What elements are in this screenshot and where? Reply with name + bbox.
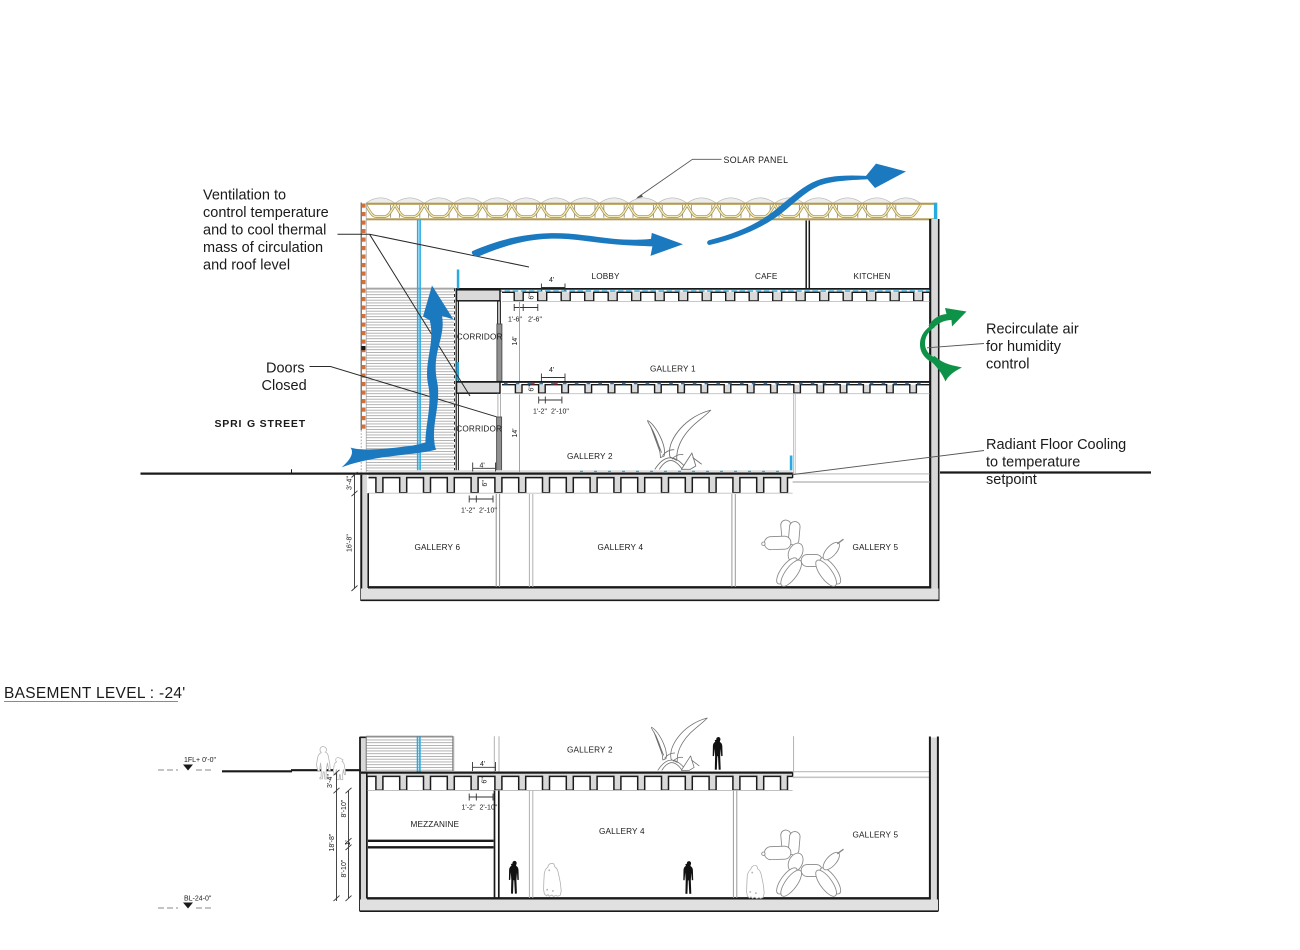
svg-text:and to cool thermal: and to cool thermal	[203, 223, 326, 239]
svg-text:14': 14'	[512, 336, 519, 345]
svg-text:MEZZANINE: MEZZANINE	[411, 820, 460, 829]
svg-text:4': 4'	[480, 761, 485, 768]
svg-text:GALLERY 4: GALLERY 4	[599, 827, 645, 836]
svg-text:GALLERY 6: GALLERY 6	[415, 543, 461, 552]
svg-text:CORRIDOR: CORRIDOR	[457, 333, 503, 342]
svg-text:1'-2": 1'-2"	[461, 508, 475, 515]
svg-text:Radiant Floor Cooling: Radiant Floor Cooling	[986, 437, 1126, 453]
svg-text:2'-10": 2'-10"	[479, 508, 497, 515]
svg-text:1'-6": 1'-6"	[508, 317, 522, 324]
svg-text:1FL+ 0'-0": 1FL+ 0'-0"	[184, 757, 217, 764]
svg-text:BL-24-0": BL-24-0"	[184, 896, 212, 903]
svg-text:and roof level: and roof level	[203, 258, 290, 274]
svg-text:6": 6"	[482, 480, 489, 487]
svg-text:8'-10": 8'-10"	[341, 859, 348, 877]
svg-text:4': 4'	[549, 367, 554, 374]
svg-text:6": 6"	[482, 777, 489, 784]
svg-text:GALLERY 1: GALLERY 1	[650, 365, 696, 374]
svg-text:8'-10": 8'-10"	[341, 799, 348, 817]
svg-text:14': 14'	[512, 428, 519, 437]
svg-text:4': 4'	[549, 277, 554, 284]
svg-text:for humidity: for humidity	[986, 339, 1062, 355]
svg-text:Recirculate air: Recirculate air	[986, 322, 1079, 338]
svg-text:CORRIDOR: CORRIDOR	[456, 425, 502, 434]
svg-text:to temperature: to temperature	[986, 455, 1080, 471]
svg-text:Ventilation to: Ventilation to	[203, 188, 286, 204]
svg-text:2'-10": 2'-10"	[551, 409, 569, 416]
svg-text:16'-8": 16'-8"	[347, 534, 354, 552]
svg-text:GALLERY 5: GALLERY 5	[853, 831, 899, 840]
svg-text:Closed: Closed	[262, 378, 307, 394]
svg-text:6": 6"	[529, 385, 536, 392]
svg-text:18'-8": 18'-8"	[329, 833, 336, 851]
svg-text:1'-2": 1'-2"	[462, 805, 476, 812]
svg-text:6": 6"	[529, 293, 536, 300]
svg-text:4': 4'	[480, 463, 485, 470]
svg-text:SPRI: SPRI	[215, 418, 243, 430]
svg-text:3'-4": 3'-4"	[327, 774, 334, 788]
svg-text:control: control	[986, 357, 1030, 373]
svg-text:GALLERY 5: GALLERY 5	[853, 543, 899, 552]
svg-text:2'-6": 2'-6"	[528, 317, 542, 324]
svg-text:LOBBY: LOBBY	[592, 272, 620, 281]
svg-text:GALLERY 2: GALLERY 2	[567, 452, 613, 461]
svg-text:Doors: Doors	[266, 361, 305, 377]
svg-text:setpoint: setpoint	[986, 472, 1037, 488]
svg-text:GALLERY 4: GALLERY 4	[598, 543, 644, 552]
svg-text:CAFE: CAFE	[755, 272, 778, 281]
svg-text:GALLERY 2: GALLERY 2	[567, 746, 613, 755]
svg-text:2'-10": 2'-10"	[480, 805, 498, 812]
svg-text:mass of circulation: mass of circulation	[203, 240, 323, 256]
svg-text:KITCHEN: KITCHEN	[854, 272, 891, 281]
svg-text:1'-2": 1'-2"	[533, 409, 547, 416]
svg-text:SOLAR PANEL: SOLAR PANEL	[724, 155, 789, 165]
svg-text:G STREET: G STREET	[247, 418, 306, 430]
svg-text:control temperature: control temperature	[203, 205, 329, 221]
svg-text:1': 1'	[345, 840, 352, 845]
svg-text:BASEMENT LEVEL : -24': BASEMENT LEVEL : -24'	[4, 685, 186, 702]
svg-text:3'-4": 3'-4"	[347, 476, 354, 490]
